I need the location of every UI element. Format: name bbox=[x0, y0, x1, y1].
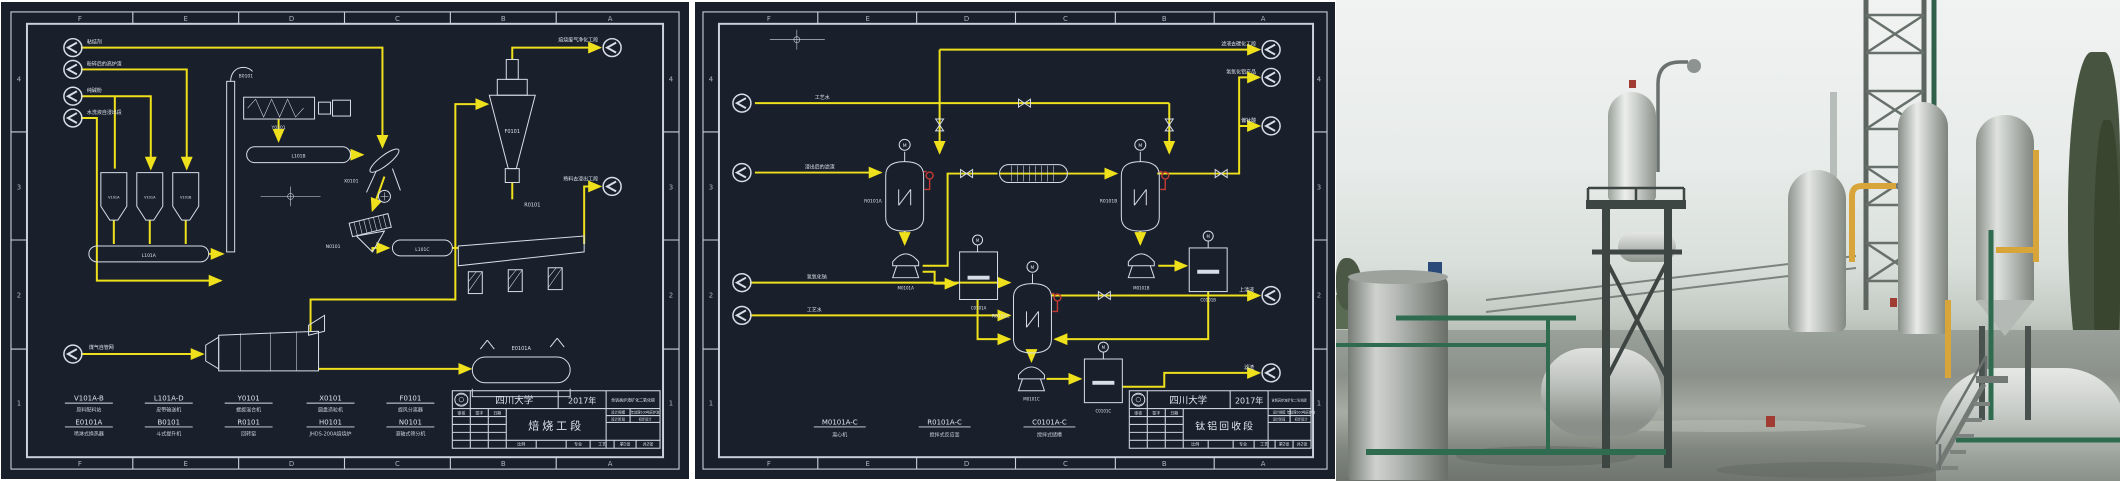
equipment-tag: M0101A bbox=[898, 286, 915, 291]
equipment-tag: R0101C bbox=[992, 313, 1010, 319]
zone-letter: A bbox=[608, 15, 613, 23]
legend-name: 喷淋式换热器 bbox=[74, 430, 104, 437]
motor-label: M bbox=[1102, 345, 1106, 350]
tb-info-value: 年处理100吨高炉渣 bbox=[631, 410, 660, 415]
equipment-tag: V101A bbox=[108, 195, 120, 199]
tb-info-value: 年处理100吨高炉渣 bbox=[1287, 410, 1316, 415]
equipment-tag: V101A bbox=[144, 195, 156, 199]
legend-name: 回转窑 bbox=[241, 430, 256, 437]
zone-number: 1 bbox=[709, 400, 713, 408]
legend-code: R0101 bbox=[237, 418, 260, 426]
year: 2017年 bbox=[1235, 396, 1263, 406]
legend-name: 离心机 bbox=[832, 431, 847, 438]
organization: 四川大学 bbox=[495, 395, 533, 407]
legend-name: 圆盘造粒机 bbox=[318, 407, 343, 414]
tb-info-label: 设计阶段 bbox=[1273, 417, 1287, 422]
stream-label: 浸出后的滤渣 bbox=[805, 164, 835, 171]
tb-major-label: 专业 bbox=[1239, 441, 1247, 446]
zone-letter: A bbox=[1261, 460, 1266, 468]
stream-label: 工艺水 bbox=[807, 306, 822, 313]
project-name: 含钒高炉渣矿化二氧化碳 bbox=[1272, 398, 1308, 403]
zone-letter: E bbox=[866, 15, 870, 23]
zone-letter: B bbox=[1162, 15, 1167, 23]
zone-number: 4 bbox=[1317, 75, 1322, 83]
zone-letter: C bbox=[1063, 460, 1068, 468]
legend-name: 斗式提升机 bbox=[156, 430, 181, 437]
stream-label: 滤渣 bbox=[1244, 364, 1254, 371]
tb-info-label: 设计规模 bbox=[611, 410, 625, 415]
equipment-tag: E0101A bbox=[512, 346, 532, 352]
platform-structure bbox=[1586, 188, 1686, 468]
equipment-tag: R0101A bbox=[864, 198, 883, 204]
equipment-tag: B0101 bbox=[239, 73, 254, 79]
tb-sheet-total: 共2张 bbox=[643, 441, 654, 446]
stream-label: 氢氧化钠 bbox=[807, 274, 827, 281]
zone-letter: F bbox=[767, 15, 771, 23]
legend-code: H0101 bbox=[319, 418, 342, 426]
stream-label: 滤液去碳化工段 bbox=[1221, 41, 1256, 48]
zone-letter: E bbox=[184, 460, 188, 468]
zone-letter: B bbox=[501, 15, 506, 23]
zone-number: 3 bbox=[17, 183, 21, 191]
equipment-tag: M0101C bbox=[1023, 397, 1040, 402]
stream-label: 焙烧废气净化工段 bbox=[558, 37, 598, 44]
motor-label: M bbox=[903, 143, 907, 149]
equipment-tag: X0101 bbox=[344, 179, 359, 185]
zone-letter: C bbox=[395, 15, 400, 23]
equipment-tag: L101B bbox=[291, 154, 305, 160]
zone-letter: F bbox=[78, 15, 82, 23]
legend-code: V101A-B bbox=[74, 395, 104, 403]
zone-number: 4 bbox=[669, 75, 674, 83]
legend-name: 滚轴式筛分机 bbox=[395, 430, 425, 437]
equipment-tag: R0101 bbox=[524, 202, 540, 208]
zone-letter: F bbox=[78, 460, 82, 468]
zone-letter: D bbox=[964, 460, 969, 468]
zone-number: 3 bbox=[1317, 183, 1321, 191]
photo-front-layer bbox=[1336, 0, 2120, 481]
zone-letter: D bbox=[289, 460, 294, 468]
tb-major-value: 工艺 bbox=[1260, 441, 1268, 446]
zone-letter: A bbox=[608, 460, 613, 468]
tb-info-label: 设计阶段 bbox=[611, 417, 625, 422]
tank-top-cap bbox=[1348, 270, 1448, 284]
zone-number: 3 bbox=[669, 183, 673, 191]
drawing-title: 钛铝回收段 bbox=[1195, 419, 1255, 432]
green-pipes bbox=[1336, 230, 2120, 452]
motor-label: M bbox=[1138, 143, 1142, 149]
tb-sheet-no: 第2张 bbox=[1279, 441, 1290, 446]
plant-photo bbox=[1336, 0, 2120, 481]
equipment-tag: F0101 bbox=[504, 129, 520, 135]
pfd-recovery-canvas: F E D C B A F E D C B A 4 3 2 1 4 3 2 1 bbox=[695, 2, 1335, 479]
screenshot: F E D C B A F E D C B A 4 3 2 1 4 3 2 1 bbox=[0, 0, 2120, 481]
stream-label: 粉碎后的高炉渣 bbox=[87, 60, 122, 67]
equipment-tag: M0101B bbox=[1133, 286, 1150, 291]
drawing-title: 焙烧工段 bbox=[528, 418, 584, 432]
organization: 四川大学 bbox=[1169, 395, 1207, 407]
equipment-tag: R0101B bbox=[1100, 198, 1118, 204]
stream-label: 熟料去浸出工段 bbox=[563, 176, 598, 183]
zone-letter: F bbox=[767, 460, 771, 468]
legend-name: 旋风分离器 bbox=[398, 407, 423, 414]
legend-code: R0101A-C bbox=[927, 418, 962, 426]
equipment-tag: C0101B bbox=[1200, 298, 1216, 303]
sheet-background bbox=[1, 2, 689, 479]
zone-number: 2 bbox=[1317, 292, 1321, 300]
legend-code: L101A-D bbox=[154, 395, 184, 403]
year: 2017年 bbox=[568, 396, 596, 406]
tb-info-value: 初步设计 bbox=[1295, 417, 1309, 422]
zone-number: 4 bbox=[17, 75, 22, 83]
legend-code: X0101 bbox=[319, 395, 342, 403]
stream-label: 工艺水 bbox=[815, 94, 830, 101]
zone-letter: E bbox=[866, 460, 870, 468]
tb-info-label: 设计规模 bbox=[1273, 410, 1287, 415]
equipment-tag: Y0101 bbox=[271, 125, 286, 131]
pfd-roasting-canvas: F E D C B A F E D C B A 4 3 2 1 4 3 2 1 bbox=[1, 2, 689, 479]
legend-name: 原料配料站 bbox=[76, 407, 101, 414]
tb-sheet-total: 共2张 bbox=[1297, 441, 1308, 446]
legend-code: Y0101 bbox=[237, 395, 260, 403]
tb-header: 签字 bbox=[1152, 411, 1160, 416]
yellow-pipes bbox=[1852, 150, 2036, 378]
stream-label: 纯碱粉 bbox=[87, 87, 102, 94]
equipment-tag: C0101C bbox=[1096, 409, 1112, 414]
zone-letter: D bbox=[289, 15, 294, 23]
zone-number: 1 bbox=[1317, 400, 1321, 408]
motor-label: M bbox=[1206, 234, 1210, 239]
zone-letter: D bbox=[964, 15, 969, 23]
tb-info-value: 初步设计 bbox=[639, 417, 653, 422]
stream-label: 水洗液自浸出段 bbox=[87, 109, 122, 116]
motor-label: M bbox=[1031, 265, 1035, 271]
zone-number: 3 bbox=[709, 183, 713, 191]
legend-code: B0101 bbox=[157, 418, 180, 426]
motor-label: M bbox=[976, 238, 980, 243]
tb-header: 签字 bbox=[475, 411, 483, 416]
stream-label: 上清液 bbox=[1239, 287, 1254, 294]
stream-label: 粘结剂 bbox=[87, 39, 102, 46]
stream-label: 偏钛酸 bbox=[1241, 117, 1256, 124]
zone-number: 1 bbox=[17, 400, 21, 408]
zone-number: 4 bbox=[709, 75, 714, 83]
legend-name: 螺旋混合机 bbox=[236, 407, 261, 414]
equipment-tag: V101B bbox=[180, 195, 192, 199]
legend-code: F0101 bbox=[400, 395, 422, 403]
tb-header: 日期 bbox=[493, 411, 501, 416]
zone-number: 2 bbox=[17, 292, 21, 300]
equipment-tag: L101C bbox=[415, 247, 429, 253]
legend-code: M0101A-C bbox=[822, 418, 858, 426]
tb-major-label: 专业 bbox=[574, 441, 582, 446]
zone-number: 2 bbox=[669, 292, 673, 300]
legend-code: C0101A-C bbox=[1032, 418, 1067, 426]
stream-label: 氢氧化铝产品 bbox=[1226, 68, 1256, 75]
legend-code: E0101A bbox=[75, 418, 102, 426]
legend-name: JHDS-200A焙烧炉 bbox=[309, 430, 352, 437]
zone-number: 1 bbox=[669, 400, 673, 408]
stream-label: 煤气自管网 bbox=[89, 344, 114, 351]
zone-letter: A bbox=[1261, 15, 1266, 23]
tb-header: 审核 bbox=[1134, 411, 1142, 416]
equipment-tag: N0101 bbox=[326, 244, 341, 250]
zone-letter: C bbox=[1063, 15, 1068, 23]
project-name: 含钒高炉渣矿化二氧化碳 bbox=[611, 398, 655, 403]
pfd-sheet-ti-al-recovery: F E D C B A F E D C B A 4 3 2 1 4 3 2 1 bbox=[695, 2, 1335, 479]
tb-sheet-no: 第1张 bbox=[620, 441, 631, 446]
legend-name: 搅拌式储槽 bbox=[1037, 431, 1062, 438]
zone-letter: B bbox=[1162, 460, 1167, 468]
zone-letter: B bbox=[501, 460, 506, 468]
legend-name: 搅拌式反应釜 bbox=[930, 431, 960, 438]
tb-header: 审核 bbox=[457, 411, 465, 416]
pfd-sheet-roasting: F E D C B A F E D C B A 4 3 2 1 4 3 2 1 bbox=[1, 2, 689, 479]
equipment-tag: C0101A bbox=[971, 305, 987, 310]
tb-scale: 比例 bbox=[1191, 441, 1199, 446]
legend-code: N0101 bbox=[399, 418, 422, 426]
tb-header: 日期 bbox=[1170, 411, 1178, 416]
zone-letter: C bbox=[395, 460, 400, 468]
tb-scale: 比例 bbox=[517, 441, 525, 446]
zone-number: 2 bbox=[709, 292, 713, 300]
equipment-tag: L101A bbox=[142, 253, 157, 259]
zone-letter: E bbox=[184, 15, 188, 23]
legend-name: 皮带输送机 bbox=[156, 407, 181, 414]
tb-major-value: 工艺 bbox=[598, 441, 606, 446]
